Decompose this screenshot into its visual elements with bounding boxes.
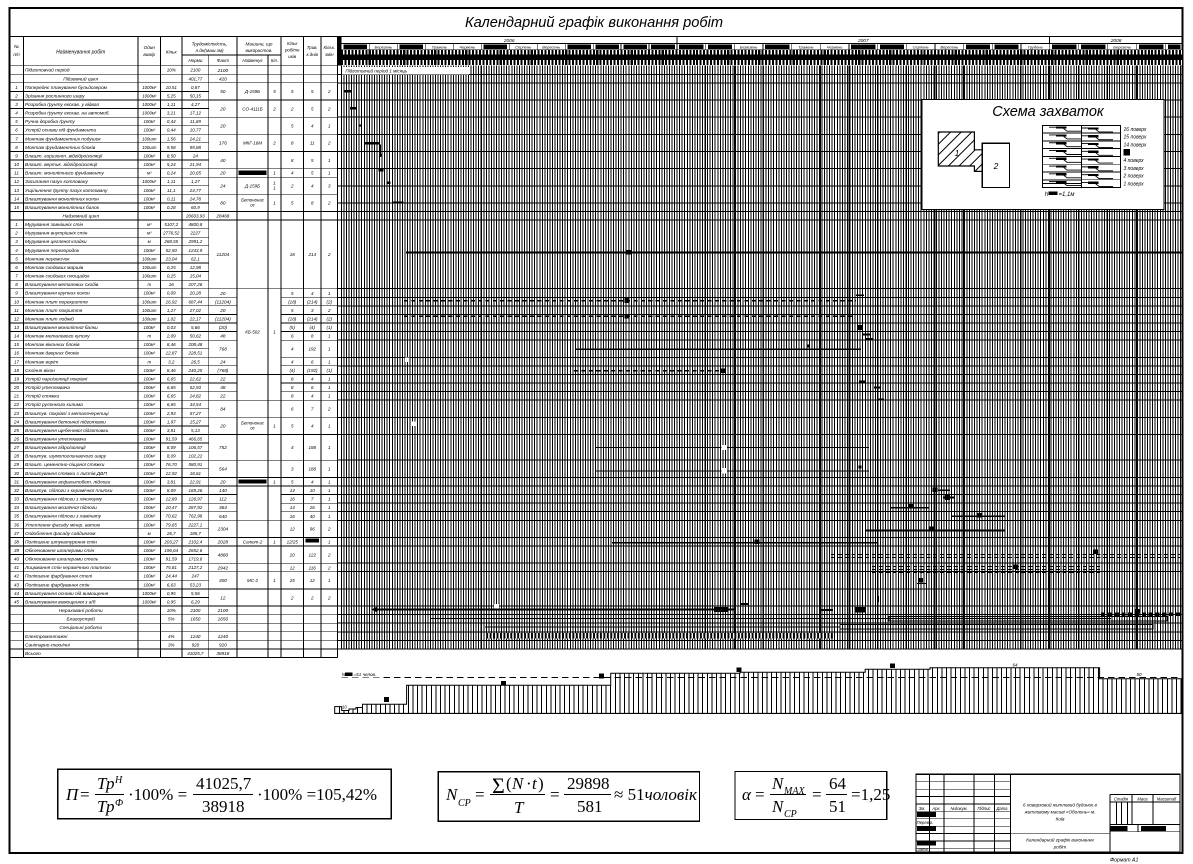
svg-text:214: 214 bbox=[307, 252, 316, 257]
svg-text:4%: 4% bbox=[168, 634, 175, 639]
svg-text:Формат А1: Формат А1 bbox=[1110, 858, 1138, 864]
svg-text:0,44: 0,44 bbox=[167, 119, 176, 124]
svg-text:100шт: 100шт bbox=[142, 316, 157, 321]
svg-text:100м²: 100м² bbox=[143, 505, 155, 510]
svg-text:20: 20 bbox=[219, 124, 226, 129]
svg-text:20: 20 bbox=[219, 424, 226, 429]
svg-text:100м³: 100м³ bbox=[143, 205, 155, 210]
svg-text:20: 20 bbox=[219, 106, 226, 111]
svg-text:24: 24 bbox=[192, 153, 199, 158]
svg-text:9,58: 9,58 bbox=[167, 145, 176, 150]
svg-text:Ущільнення ґрунту пазух котлов: Ущільнення ґрунту пазух котловану bbox=[25, 187, 108, 194]
svg-text:2942: 2942 bbox=[217, 565, 229, 570]
svg-text:п/п: п/п bbox=[13, 52, 20, 57]
svg-text:16: 16 bbox=[14, 351, 20, 356]
svg-text:25: 25 bbox=[13, 428, 20, 433]
svg-text:84: 84 bbox=[220, 407, 226, 412]
svg-text:2127,2: 2127,2 bbox=[188, 565, 203, 570]
svg-text:39: 39 bbox=[14, 548, 20, 553]
svg-text:т: т bbox=[147, 359, 151, 364]
svg-text:23: 23 bbox=[13, 411, 20, 416]
svg-text:Влаштування крупних колон: Влаштування крупних колон bbox=[25, 291, 90, 297]
svg-text:2100: 2100 bbox=[189, 68, 201, 73]
svg-text:12/25: 12/25 bbox=[287, 540, 299, 545]
svg-text:27,02: 27,02 bbox=[189, 308, 202, 313]
svg-text:Найменує: Найменує bbox=[242, 58, 263, 63]
svg-text:100м²: 100м² bbox=[143, 351, 155, 356]
svg-text:16 поверх: 16 поверх bbox=[1124, 127, 1147, 133]
svg-text:18: 18 bbox=[14, 368, 20, 373]
svg-text:(4): (4) bbox=[289, 368, 295, 373]
svg-text:34: 34 bbox=[14, 505, 20, 510]
svg-text:12,87: 12,87 bbox=[166, 351, 178, 356]
svg-text:м: м bbox=[148, 239, 151, 244]
svg-text:Влаштування металевих сходів: Влаштування металевих сходів bbox=[25, 282, 99, 288]
svg-text:Грудень: Грудень bbox=[1028, 44, 1043, 49]
svg-text:=: = bbox=[755, 785, 765, 804]
svg-text:15: 15 bbox=[14, 205, 20, 210]
svg-text:100м²: 100м² bbox=[143, 128, 155, 133]
svg-text:Устрій стяжки: Устрій стяжки bbox=[25, 393, 60, 400]
svg-text:401,77: 401,77 bbox=[189, 76, 203, 81]
svg-text:96: 96 bbox=[310, 527, 316, 532]
svg-text:11: 11 bbox=[14, 171, 19, 176]
svg-text:100м²: 100м² bbox=[143, 385, 155, 390]
svg-text:2: 2 bbox=[272, 141, 276, 146]
svg-text:24: 24 bbox=[13, 419, 20, 424]
svg-text:Н: Н bbox=[114, 775, 123, 786]
svg-text:762,98: 762,98 bbox=[189, 514, 203, 519]
svg-text:1,27: 1,27 bbox=[167, 308, 176, 313]
svg-text:22,91: 22,91 bbox=[189, 479, 202, 484]
svg-text:10,51: 10,51 bbox=[166, 85, 178, 90]
svg-text:100м²: 100м² bbox=[143, 419, 155, 424]
svg-text:2: 2 bbox=[14, 93, 18, 98]
svg-text:=: = bbox=[550, 785, 560, 804]
svg-text:37: 37 bbox=[14, 531, 20, 536]
svg-text:100м²: 100м² bbox=[143, 291, 155, 296]
svg-text:40: 40 bbox=[220, 158, 226, 163]
svg-text:112: 112 bbox=[219, 497, 227, 502]
svg-text:300: 300 bbox=[219, 578, 227, 583]
svg-text:Березень: Березень bbox=[740, 44, 758, 49]
svg-text:100шт: 100шт bbox=[142, 299, 157, 304]
svg-text:12,98: 12,98 bbox=[190, 265, 202, 270]
svg-text:10: 10 bbox=[14, 162, 20, 167]
svg-text:100м²: 100м² bbox=[143, 574, 155, 579]
svg-text:13: 13 bbox=[14, 188, 20, 193]
svg-text:17,12: 17,12 bbox=[190, 111, 202, 116]
svg-text:13: 13 bbox=[14, 325, 20, 330]
svg-text:Влаштування монолітних колон: Влаштування монолітних колон bbox=[25, 196, 99, 202]
svg-text:≈ 51чоловік: ≈ 51чоловік bbox=[614, 785, 698, 804]
svg-text:Дата: Дата bbox=[995, 806, 1008, 811]
svg-text:Зм.: Зм. bbox=[919, 806, 926, 811]
svg-text:0,95: 0,95 bbox=[167, 599, 176, 604]
svg-text:100шт: 100шт bbox=[142, 308, 157, 313]
svg-text:100м²: 100м² bbox=[143, 342, 155, 347]
svg-text:Попереднє планування бульдозер: Попереднє планування бульдозером bbox=[25, 85, 108, 91]
svg-text:20: 20 bbox=[289, 552, 296, 557]
svg-text:1240: 1240 bbox=[218, 634, 229, 639]
svg-text:2102,4: 2102,4 bbox=[188, 539, 203, 544]
svg-text:Ручна доробка ґрунту: Ручна доробка ґрунту bbox=[25, 118, 75, 125]
svg-text:29898: 29898 bbox=[567, 774, 610, 793]
svg-text:=: = bbox=[812, 785, 822, 804]
svg-text:687,44: 687,44 bbox=[189, 299, 203, 304]
svg-text:Монтаж фундаментних подушок: Монтаж фундаментних подушок bbox=[25, 136, 101, 142]
svg-text:Червень: Червень bbox=[459, 44, 475, 49]
svg-text:100м²: 100м² bbox=[143, 162, 155, 167]
svg-text:12: 12 bbox=[14, 316, 20, 321]
svg-text:Скління вікон: Скління вікон bbox=[25, 368, 55, 374]
svg-text:100м²: 100м² bbox=[143, 462, 155, 467]
svg-text:0,28: 0,28 bbox=[167, 205, 176, 210]
svg-text:57,27: 57,27 bbox=[190, 411, 202, 416]
svg-text:8,46: 8,46 bbox=[167, 368, 176, 373]
svg-text:100м²: 100м² bbox=[143, 368, 155, 373]
svg-text:3 поверх: 3 поверх bbox=[1124, 166, 1145, 172]
svg-text:3,2: 3,2 bbox=[168, 359, 175, 364]
svg-text:2: 2 bbox=[327, 89, 331, 94]
svg-text:8,50: 8,50 bbox=[167, 153, 176, 158]
svg-text:2: 2 bbox=[327, 201, 331, 206]
svg-text:=1,25: =1,25 bbox=[851, 785, 890, 804]
svg-text:(1): (1) bbox=[327, 368, 333, 373]
svg-text:52,50: 52,50 bbox=[166, 248, 178, 253]
svg-text:4880: 4880 bbox=[218, 552, 229, 557]
svg-text:28: 28 bbox=[13, 454, 20, 459]
svg-text:0,44: 0,44 bbox=[167, 128, 176, 133]
svg-text:20: 20 bbox=[219, 479, 226, 484]
svg-text:1,11: 1,11 bbox=[167, 102, 176, 107]
svg-text:1 поверх: 1 поверх bbox=[1124, 181, 1145, 187]
svg-text:П: П bbox=[65, 785, 80, 804]
svg-text:3,21: 3,21 bbox=[167, 111, 176, 116]
svg-text:50: 50 bbox=[1136, 672, 1142, 677]
svg-text:2: 2 bbox=[327, 106, 331, 111]
svg-text:48: 48 bbox=[220, 385, 226, 390]
svg-text:Найменування робіт: Найменування робіт bbox=[56, 49, 105, 56]
svg-text:Влаштування підлоги з ламінату: Влаштування підлоги з ламінату bbox=[25, 514, 102, 520]
svg-text:100м²: 100м² bbox=[143, 394, 155, 399]
svg-text:31: 31 bbox=[14, 479, 20, 484]
svg-text:N: N bbox=[445, 785, 459, 804]
svg-text:16,92: 16,92 bbox=[166, 299, 178, 304]
svg-text:2008: 2008 bbox=[1110, 38, 1122, 44]
svg-text:4,27: 4,27 bbox=[191, 102, 200, 107]
svg-text:1,02: 1,02 bbox=[167, 316, 176, 321]
svg-text:100м²: 100м² bbox=[143, 514, 155, 519]
svg-text:2: 2 bbox=[327, 527, 331, 532]
svg-text:106,57: 106,57 bbox=[189, 445, 203, 450]
svg-text:100шт: 100шт bbox=[142, 265, 157, 270]
svg-text:Влашт. вертик. відгідроізоляці: Влашт. вертик. відгідроізоляції bbox=[25, 162, 98, 168]
svg-text:14: 14 bbox=[14, 334, 20, 339]
svg-text:100м²: 100м² bbox=[143, 445, 155, 450]
svg-text:Влаштування вимощення з а/б: Влаштування вимощення з а/б bbox=[25, 599, 96, 605]
svg-text:14: 14 bbox=[14, 196, 20, 201]
svg-text:м³: м³ bbox=[147, 222, 152, 227]
svg-text:Мурування перегородок: Мурування перегородок bbox=[25, 248, 80, 254]
svg-text:(11204): (11204) bbox=[215, 317, 231, 322]
svg-text:1243,9: 1243,9 bbox=[189, 248, 203, 253]
svg-text:16: 16 bbox=[290, 514, 296, 519]
svg-text:Київ: Київ bbox=[1056, 817, 1065, 822]
svg-text:Оздоблення фасаду сайдингом: Оздоблення фасаду сайдингом bbox=[25, 530, 96, 537]
svg-text:64: 64 bbox=[829, 774, 847, 793]
svg-text:0,87: 0,87 bbox=[191, 85, 200, 90]
svg-text:11204: 11204 bbox=[217, 252, 230, 257]
svg-text:247: 247 bbox=[191, 574, 200, 579]
svg-text:36: 36 bbox=[14, 522, 20, 527]
svg-text:228,51: 228,51 bbox=[188, 351, 203, 356]
svg-text:Підготовчий період: Підготовчий період bbox=[25, 67, 70, 74]
svg-text:24,44: 24,44 bbox=[165, 574, 178, 579]
svg-text:(192): (192) bbox=[307, 368, 318, 373]
svg-text:СР: СР bbox=[784, 809, 797, 820]
svg-text:100м²: 100м² bbox=[143, 153, 155, 158]
svg-text:Мурування цегляної кладки: Мурування цегляної кладки bbox=[25, 239, 87, 245]
svg-text:Розробка ґрунту екскав. у відв: Розробка ґрунту екскав. у відвал bbox=[25, 101, 99, 108]
svg-text:1000м³: 1000м³ bbox=[142, 111, 157, 116]
svg-text:10: 10 bbox=[342, 705, 347, 710]
svg-text:126,97: 126,97 bbox=[189, 497, 203, 502]
svg-text:Ф: Ф bbox=[115, 798, 123, 809]
svg-text:24: 24 bbox=[219, 184, 226, 189]
svg-text:3,81: 3,81 bbox=[167, 428, 176, 433]
svg-text:6,65: 6,65 bbox=[167, 376, 176, 381]
svg-text:99,88: 99,88 bbox=[190, 145, 202, 150]
svg-text:2: 2 bbox=[310, 595, 314, 600]
svg-text:38918: 38918 bbox=[202, 797, 245, 816]
svg-text:2: 2 bbox=[272, 106, 276, 111]
svg-text:Монтаж фундаментних блоків: Монтаж фундаментних блоків bbox=[25, 145, 96, 151]
svg-text:43: 43 bbox=[14, 582, 20, 587]
svg-text:188: 188 bbox=[308, 467, 316, 472]
svg-text:2: 2 bbox=[993, 161, 999, 171]
svg-text:100м²: 100м² bbox=[143, 565, 155, 570]
svg-text:Стадія: Стадія bbox=[1114, 797, 1129, 802]
svg-text:Тр: Тр bbox=[97, 774, 115, 793]
svg-text:Підпис: Підпис bbox=[977, 806, 991, 811]
svg-text:Схема захваток: Схема захваток bbox=[992, 104, 1105, 120]
svg-text:Машини, що: Машини, що bbox=[246, 42, 273, 47]
svg-text:(18): (18) bbox=[288, 317, 297, 322]
svg-text:2: 2 bbox=[327, 407, 331, 412]
svg-text:20,65: 20,65 bbox=[189, 171, 202, 176]
svg-text:8,09: 8,09 bbox=[167, 454, 176, 459]
svg-text:Перевір.: Перевір. bbox=[917, 820, 934, 825]
svg-text:70,62: 70,62 bbox=[166, 514, 178, 519]
svg-text:(2): (2) bbox=[327, 317, 333, 322]
svg-text:24,77: 24,77 bbox=[189, 188, 202, 193]
svg-text:41025,7: 41025,7 bbox=[187, 651, 204, 656]
svg-text:5,56: 5,56 bbox=[191, 591, 200, 596]
svg-text:Д-159Б: Д-159Б bbox=[244, 89, 260, 94]
svg-text:24,82: 24,82 bbox=[189, 394, 202, 399]
svg-text:0,09: 0,09 bbox=[167, 291, 176, 296]
svg-text:=: = bbox=[80, 785, 90, 804]
svg-text:Влаштування утеплювача: Влаштування утеплювача bbox=[25, 437, 86, 443]
svg-text:30: 30 bbox=[14, 471, 20, 476]
svg-text:0,03: 0,03 bbox=[167, 325, 176, 330]
svg-text:52,93: 52,93 bbox=[190, 385, 202, 390]
svg-text:1,27: 1,27 bbox=[191, 179, 200, 184]
svg-text:1000м²: 1000м² bbox=[142, 599, 157, 604]
svg-text:1240: 1240 bbox=[190, 634, 201, 639]
svg-text:10,47: 10,47 bbox=[166, 505, 178, 510]
svg-text:Монтаж воріт: Монтаж воріт bbox=[25, 359, 58, 365]
svg-text:3%: 3% bbox=[168, 642, 175, 647]
svg-text:(5): (5) bbox=[289, 325, 295, 330]
svg-text:к.днів: к.днів bbox=[306, 52, 318, 57]
svg-text:1,11: 1,11 bbox=[167, 179, 176, 184]
svg-text:робіт: робіт bbox=[1053, 845, 1067, 850]
svg-text:0,11: 0,11 bbox=[167, 196, 176, 201]
svg-text:Підземний цикл: Підземний цикл bbox=[63, 75, 98, 82]
svg-text:22,62: 22,62 bbox=[189, 376, 202, 381]
svg-text:100шт: 100шт bbox=[142, 274, 157, 279]
svg-text:2: 2 bbox=[327, 552, 331, 557]
svg-text:16: 16 bbox=[290, 497, 296, 502]
svg-text:44: 44 bbox=[14, 591, 20, 596]
svg-text:(214): (214) bbox=[307, 299, 318, 304]
svg-text:38918: 38918 bbox=[216, 651, 229, 656]
svg-text:Арк.: Арк. bbox=[931, 806, 940, 811]
svg-text:1000м³: 1000м³ bbox=[142, 102, 157, 107]
svg-text:15: 15 bbox=[14, 342, 20, 347]
svg-text:Зрізання рослинного шару: Зрізання рослинного шару bbox=[25, 93, 85, 99]
svg-text:208,48: 208,48 bbox=[188, 342, 203, 347]
svg-text:364: 364 bbox=[219, 505, 227, 510]
svg-text:Вересень: Вересень bbox=[542, 44, 560, 49]
svg-text:100м²: 100м² bbox=[143, 248, 155, 253]
svg-text:Трудомісткість,: Трудомісткість, bbox=[192, 42, 228, 47]
svg-text:0,25: 0,25 bbox=[167, 265, 176, 270]
svg-text:5,25: 5,25 bbox=[167, 93, 176, 98]
svg-text:100м²: 100м² bbox=[143, 539, 155, 544]
svg-text:2006: 2006 bbox=[503, 38, 515, 44]
svg-text:Монтаж плит перекриття: Монтаж плит перекриття bbox=[25, 299, 88, 305]
svg-text:·: · bbox=[526, 774, 532, 793]
svg-text:=: = bbox=[475, 785, 485, 804]
svg-text:2100: 2100 bbox=[217, 68, 229, 73]
svg-text:12: 12 bbox=[290, 527, 296, 532]
svg-text:207,26: 207,26 bbox=[188, 282, 203, 287]
svg-text:14: 14 bbox=[290, 488, 296, 493]
svg-text:Поліпшене фарбування стелі: Поліпшене фарбування стелі bbox=[25, 574, 93, 580]
svg-text:0,24: 0,24 bbox=[167, 171, 176, 176]
svg-text:23,04: 23,04 bbox=[165, 256, 178, 261]
svg-text:19: 19 bbox=[14, 376, 20, 381]
svg-text:Монтаж плит покриття: Монтаж плит покриття bbox=[25, 308, 83, 314]
svg-text:21,94: 21,94 bbox=[189, 162, 202, 167]
svg-text:116: 116 bbox=[309, 565, 317, 570]
svg-text:140: 140 bbox=[219, 488, 227, 493]
svg-text:100м²: 100м² bbox=[143, 428, 155, 433]
svg-text:11,1: 11,1 bbox=[167, 188, 176, 193]
svg-text:2991,2: 2991,2 bbox=[188, 239, 203, 244]
svg-text:60,9: 60,9 bbox=[191, 205, 200, 210]
svg-text:24,78: 24,78 bbox=[189, 196, 202, 201]
svg-text:50: 50 bbox=[220, 89, 226, 94]
svg-text:11: 11 bbox=[310, 141, 315, 146]
svg-text:м: м bbox=[148, 531, 151, 536]
svg-text:53,23: 53,23 bbox=[190, 582, 202, 587]
svg-text:100м³: 100м³ bbox=[143, 119, 155, 124]
svg-text:8,09: 8,09 bbox=[167, 488, 176, 493]
svg-text:640: 640 bbox=[219, 514, 227, 519]
svg-text:МКГ-16М: МКГ-16М bbox=[243, 141, 262, 146]
svg-text:м³: м³ bbox=[147, 231, 152, 236]
svg-text:Тр: Тр bbox=[97, 797, 115, 816]
svg-text:2: 2 bbox=[327, 565, 331, 570]
svg-text:Устрій пароізоляції покрівлі: Устрій пароізоляції покрівлі bbox=[25, 375, 88, 382]
svg-text:Влаштування щебеневої підготов: Влаштування щебеневої підготовки bbox=[25, 428, 109, 434]
svg-text:100шт: 100шт bbox=[142, 145, 157, 150]
svg-text:2100: 2100 bbox=[217, 608, 229, 613]
svg-text:91,59: 91,59 bbox=[166, 437, 178, 442]
svg-text:18: 18 bbox=[290, 252, 296, 257]
svg-text:5,66: 5,66 bbox=[191, 325, 200, 330]
svg-text:(4): (4) bbox=[309, 325, 315, 330]
svg-text:185,7: 185,7 bbox=[190, 531, 202, 536]
svg-text:45: 45 bbox=[14, 599, 20, 604]
svg-text:2,93: 2,93 bbox=[166, 411, 176, 416]
svg-text:1000м³: 1000м³ bbox=[142, 179, 157, 184]
svg-text:188: 188 bbox=[308, 445, 316, 450]
svg-text:5%: 5% bbox=[168, 617, 175, 622]
svg-text:Засипання пазух котловану: Засипання пазух котловану bbox=[25, 179, 88, 185]
svg-text:100м²: 100м² bbox=[143, 582, 155, 587]
svg-text:1719,6: 1719,6 bbox=[189, 557, 203, 562]
svg-text:26: 26 bbox=[13, 437, 20, 442]
svg-text:100м²: 100м² bbox=[143, 497, 155, 502]
svg-text:2007: 2007 bbox=[857, 38, 869, 44]
svg-text:Монтаж металевого куполу: Монтаж металевого куполу bbox=[25, 334, 90, 340]
svg-text:76,70: 76,70 bbox=[166, 462, 178, 467]
svg-text:102,22: 102,22 bbox=[189, 454, 203, 459]
svg-text:Монтаж віконних блоків: Монтаж віконних блоків bbox=[25, 342, 80, 348]
svg-text:91,59: 91,59 bbox=[166, 557, 178, 562]
svg-text:Влаштування бетонної підготовк: Влаштування бетонної підготовки bbox=[25, 419, 106, 425]
svg-text:2: 2 bbox=[14, 231, 18, 236]
svg-text:Календарний графік виконання: Календарний графік виконання bbox=[1026, 837, 1094, 843]
svg-text:Трив.: Трив. bbox=[307, 45, 318, 50]
svg-text:34,54: 34,54 bbox=[190, 402, 202, 407]
svg-text:203,27: 203,27 bbox=[163, 539, 178, 544]
svg-text:20: 20 bbox=[13, 385, 20, 390]
svg-text:2,09: 2,09 bbox=[166, 334, 176, 339]
svg-text:Мурування зовнішніх стін: Мурування зовнішніх стін bbox=[25, 222, 84, 228]
svg-text:33: 33 bbox=[14, 497, 20, 502]
svg-text:Устрій рулонного килима: Устрій рулонного килима bbox=[25, 401, 83, 408]
svg-text:2: 2 bbox=[290, 184, 294, 189]
svg-text:268,55: 268,55 bbox=[163, 239, 178, 244]
svg-text:Монтаж дверних блоків: Монтаж дверних блоків bbox=[25, 351, 79, 357]
svg-text:75,81: 75,81 bbox=[166, 565, 178, 570]
svg-text:2: 2 bbox=[327, 308, 331, 313]
svg-text:2: 2 bbox=[327, 252, 331, 257]
svg-text:№: № bbox=[14, 44, 19, 49]
svg-text:6,65: 6,65 bbox=[167, 394, 176, 399]
svg-text:35: 35 bbox=[14, 514, 20, 519]
svg-text:6 поверховий житловий будинок: 6 поверховий житловий будинок в bbox=[1023, 802, 1098, 808]
svg-text:287,92: 287,92 bbox=[188, 505, 203, 510]
svg-text:48: 48 bbox=[220, 334, 226, 339]
svg-text:38: 38 bbox=[14, 539, 20, 544]
